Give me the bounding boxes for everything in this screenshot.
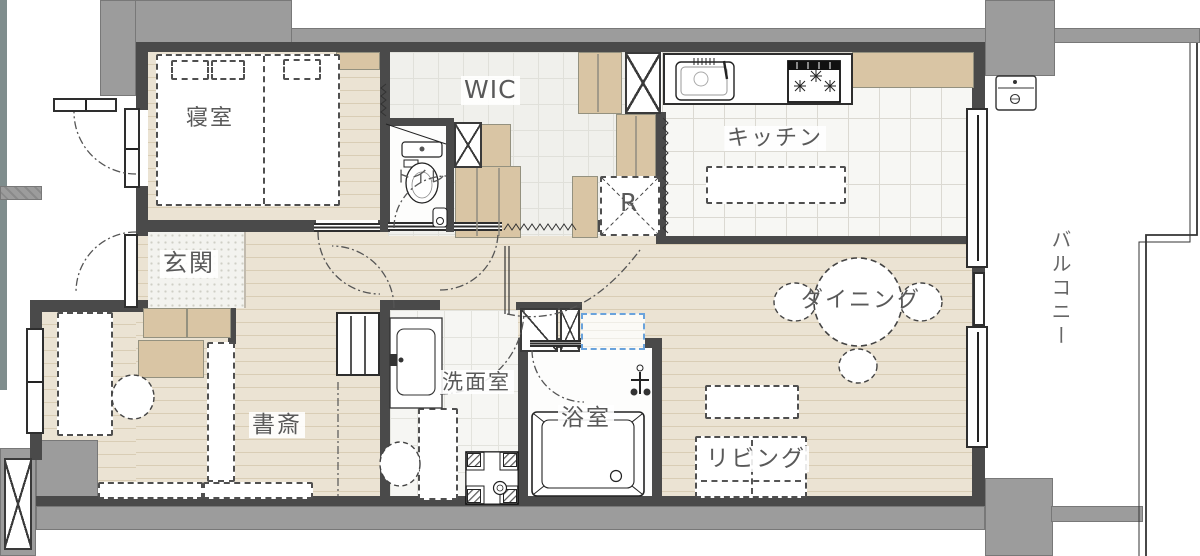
bed-divider (263, 56, 265, 204)
pillow (171, 60, 209, 80)
entrance-label: 玄関 (160, 250, 218, 278)
pipe-shaft-toilet (454, 122, 482, 168)
kitchen-label: キッチン (724, 126, 826, 151)
entrance-door (124, 234, 138, 308)
living-east-window (966, 326, 988, 448)
balcony-label: バルコニー (1048, 226, 1071, 352)
wall-wash-bath (518, 344, 528, 500)
wall-west-upper (136, 52, 148, 110)
wall-bath-east (652, 344, 662, 500)
wall-bedroom-east (380, 52, 390, 222)
wall-bedroom-south (142, 220, 316, 232)
bedroom-west-window (124, 108, 140, 188)
wall-kitchen-south (656, 236, 972, 244)
balcony-railing (1139, 43, 1197, 556)
study-bookshelf (207, 342, 235, 482)
fridge-label: R (617, 189, 642, 218)
wall-washroom-west (380, 310, 390, 500)
exterior-pillar-top-right (985, 0, 1055, 76)
dining-label: ダイニング (798, 288, 924, 313)
bath-label: 浴室 (558, 405, 614, 431)
toilet-label: トイレ (392, 168, 449, 186)
study-desk-south-b (203, 482, 313, 499)
living-label: リビング (703, 446, 809, 472)
bedroom-closet (336, 52, 380, 70)
wall-east-c (972, 448, 985, 506)
window-sash (28, 381, 41, 383)
wall-north (136, 42, 985, 52)
highlighted-linen-shelf (581, 313, 645, 350)
washroom-linen-cabinet (418, 408, 458, 500)
pillow (211, 60, 245, 80)
shoe-cabinet-a (143, 308, 187, 338)
coffee-table (705, 385, 799, 419)
study-desk-west (57, 312, 113, 436)
wall-west-lower-b (30, 434, 42, 460)
study-cabinet (138, 340, 204, 378)
study-label: 書斎 (249, 412, 305, 438)
exterior-column-left (100, 0, 136, 96)
sofa-seat-edge (701, 480, 800, 482)
balcony-divider-strip (1051, 506, 1143, 522)
closet-column-b (616, 114, 656, 178)
closet-column-c (572, 176, 598, 238)
exterior-pillar-bottom-right (985, 478, 1053, 556)
wall-toilet-top (384, 118, 454, 126)
dining-east-window (966, 108, 988, 268)
closet-door-line (364, 316, 366, 374)
wic-cabinet-a (477, 124, 511, 168)
window-sash (126, 148, 137, 150)
window-sash (977, 115, 979, 262)
exterior-stub-left (0, 186, 42, 200)
study-desk-south-a (98, 482, 203, 499)
pipe-shaft-kitchen (625, 52, 661, 114)
study-closet-doors (336, 312, 380, 376)
closet-door-line (350, 316, 352, 374)
pipe-shaft-southwest (4, 458, 32, 550)
window-sash (977, 332, 979, 443)
exterior-wall-bottom-band (36, 506, 985, 530)
toilet-sliding-door-track (388, 222, 446, 231)
fixed-window-east (973, 272, 985, 326)
bedroom-sliding-door-track (314, 223, 380, 232)
wall-washroom-top (380, 300, 440, 310)
shoe-cabinet-b (187, 308, 231, 338)
corridor-window (53, 98, 117, 112)
study-west-window (26, 328, 44, 434)
window-sash (85, 100, 87, 109)
balcony-utility-sink (996, 76, 1036, 110)
pillow (283, 59, 321, 80)
closet-column-a (578, 52, 622, 114)
washroom-label: 洗面室 (439, 370, 514, 394)
wic-label: WIC (461, 76, 520, 105)
bath-door-track (530, 340, 584, 347)
bedroom-label: 寝室 (183, 106, 237, 131)
kitchen-cabinet (852, 52, 974, 88)
floor-plan: 寝室 WIC トイレ キッチン R 玄関 ダイニング 書斎 洗面室 浴室 リビン… (0, 0, 1200, 556)
kitchen-island-counter (706, 166, 846, 204)
wic-sliding-door-track (454, 222, 502, 231)
